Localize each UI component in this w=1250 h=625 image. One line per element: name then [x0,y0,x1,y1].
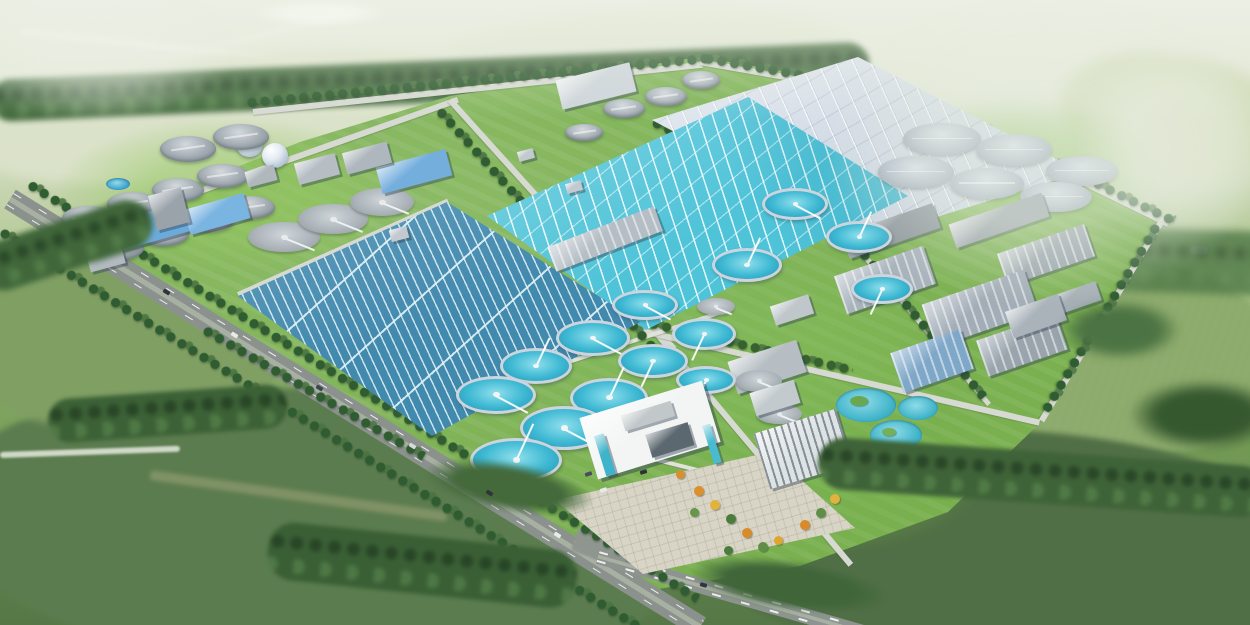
tree [816,508,826,518]
clarifier [672,318,736,350]
pond-island [882,428,896,436]
tree [758,542,768,552]
digester-tank [197,164,249,188]
clarifier [456,376,536,414]
landscape-pond [836,388,896,422]
tree [726,514,736,524]
autumn-tree [710,500,720,510]
distribution-well [697,298,735,315]
tree [724,546,733,555]
clarifier [851,274,913,304]
clarifier [612,290,678,320]
autumn-tree [774,536,783,545]
autumn-tree [800,520,810,530]
autumn-tree [830,494,840,504]
clarifier [712,248,782,282]
autumn-tree [676,470,685,479]
autumn-tree [694,486,704,496]
clarifier [762,188,828,220]
autumn-tree [742,528,752,538]
clarifier [556,320,630,356]
pond-island [850,396,868,406]
gas-holder-sphere [262,143,288,168]
landscape-pond [898,396,938,420]
digester-tank [160,136,216,162]
tree-clump [1060,300,1180,360]
clarifier [618,344,688,378]
tree [690,508,699,517]
storage-tank [565,124,603,141]
digester-tank [213,124,269,150]
small-pool [106,178,130,190]
aerial-plant-rendering [0,0,1250,625]
